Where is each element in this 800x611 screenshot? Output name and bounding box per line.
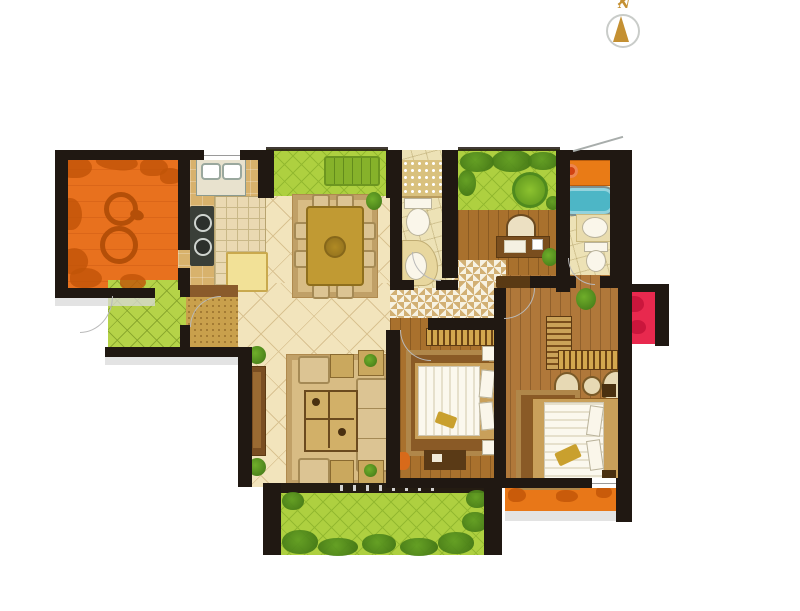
wall: [390, 280, 414, 290]
garden-post: [484, 483, 502, 555]
hallway-mosaic: [390, 288, 504, 318]
bedroom2-dresser-item: [432, 454, 442, 462]
balcony-foliage: [556, 490, 578, 502]
master-plant: [576, 288, 596, 310]
garden-bush: [460, 152, 494, 172]
master-nightstand: [602, 384, 616, 397]
wall: [618, 284, 658, 292]
garden-bush: [458, 170, 476, 196]
potted-plant: [366, 192, 382, 210]
north-arrow-icon: [613, 16, 629, 42]
garden-bench: [324, 156, 380, 186]
bay-rail: [266, 147, 388, 151]
stove-burner: [194, 238, 212, 256]
side-table: [330, 460, 354, 484]
garden-rail: [458, 147, 560, 151]
coffee-table-divider: [304, 418, 354, 420]
master-dresser: [558, 350, 626, 370]
bedroom2-pillow: [479, 401, 496, 430]
bath2-sink: [582, 217, 608, 238]
compass: N: [600, 0, 648, 56]
garden-post: [263, 483, 281, 555]
wall: [442, 150, 458, 278]
kitchen-window: [204, 150, 240, 160]
balcony-foliage: [508, 488, 526, 502]
stove-burner: [194, 214, 212, 232]
wall: [105, 347, 243, 357]
wall: [556, 150, 570, 292]
wall: [618, 284, 632, 487]
corner-plant: [364, 464, 377, 477]
tv-screen: [253, 372, 261, 448]
floor-plan-canvas: N: [0, 0, 800, 611]
wall: [55, 150, 68, 298]
wall: [530, 276, 576, 288]
wall: [610, 150, 632, 288]
sofa-cushion-line: [356, 438, 386, 439]
garden-bush: [400, 538, 438, 556]
terrace-chair: [100, 226, 138, 264]
desk-monitor: [532, 239, 543, 250]
wall: [55, 150, 190, 160]
bedroom2-pillow: [479, 369, 496, 398]
wall: [258, 150, 274, 198]
corner-plant: [364, 354, 377, 367]
toilet-bowl: [406, 208, 430, 236]
flower-bed-blossom: [630, 320, 646, 334]
side-table: [330, 354, 354, 378]
dining-table-centerpiece: [324, 236, 346, 258]
garden-bush: [528, 152, 558, 170]
wall: [188, 150, 204, 160]
wall: [180, 283, 190, 297]
terrace-foliage: [70, 268, 102, 288]
wall: [616, 478, 632, 522]
wall: [502, 478, 592, 488]
sofa-cushion-line: [356, 408, 386, 409]
garden-bush: [438, 532, 474, 554]
sofa-long: [356, 378, 390, 472]
wall: [428, 318, 502, 330]
teacup: [312, 398, 320, 406]
wall: [238, 347, 252, 487]
garden-bush: [318, 538, 358, 556]
armchair: [298, 356, 330, 384]
balcony-door: [592, 478, 616, 488]
wall: [386, 478, 502, 488]
garden-bush: [492, 150, 532, 172]
foyer-cabinet: [186, 285, 238, 297]
compass-north-label: N: [614, 0, 634, 12]
bedroom2-dresser: [424, 450, 466, 470]
wall: [390, 150, 402, 290]
dining-chair: [312, 284, 330, 299]
garden-bush: [282, 492, 304, 510]
wall: [178, 150, 190, 250]
teacup: [338, 428, 346, 436]
sink-basin: [222, 163, 242, 180]
armchair: [298, 458, 330, 486]
desk-paper: [504, 240, 526, 253]
wall-shadow: [105, 357, 243, 365]
sink-basin: [201, 163, 221, 180]
master-pouf: [582, 376, 602, 396]
garden-tree: [512, 172, 548, 208]
garden-bush: [282, 530, 318, 554]
wall: [386, 330, 400, 487]
wall: [180, 325, 190, 349]
dining-chair: [336, 284, 354, 299]
garden-bush: [362, 534, 396, 554]
shower-area: [402, 160, 442, 198]
wall: [655, 284, 669, 346]
bedroom2-wardrobe: [426, 328, 500, 346]
wall-shadow: [505, 511, 617, 521]
wall: [436, 280, 458, 290]
